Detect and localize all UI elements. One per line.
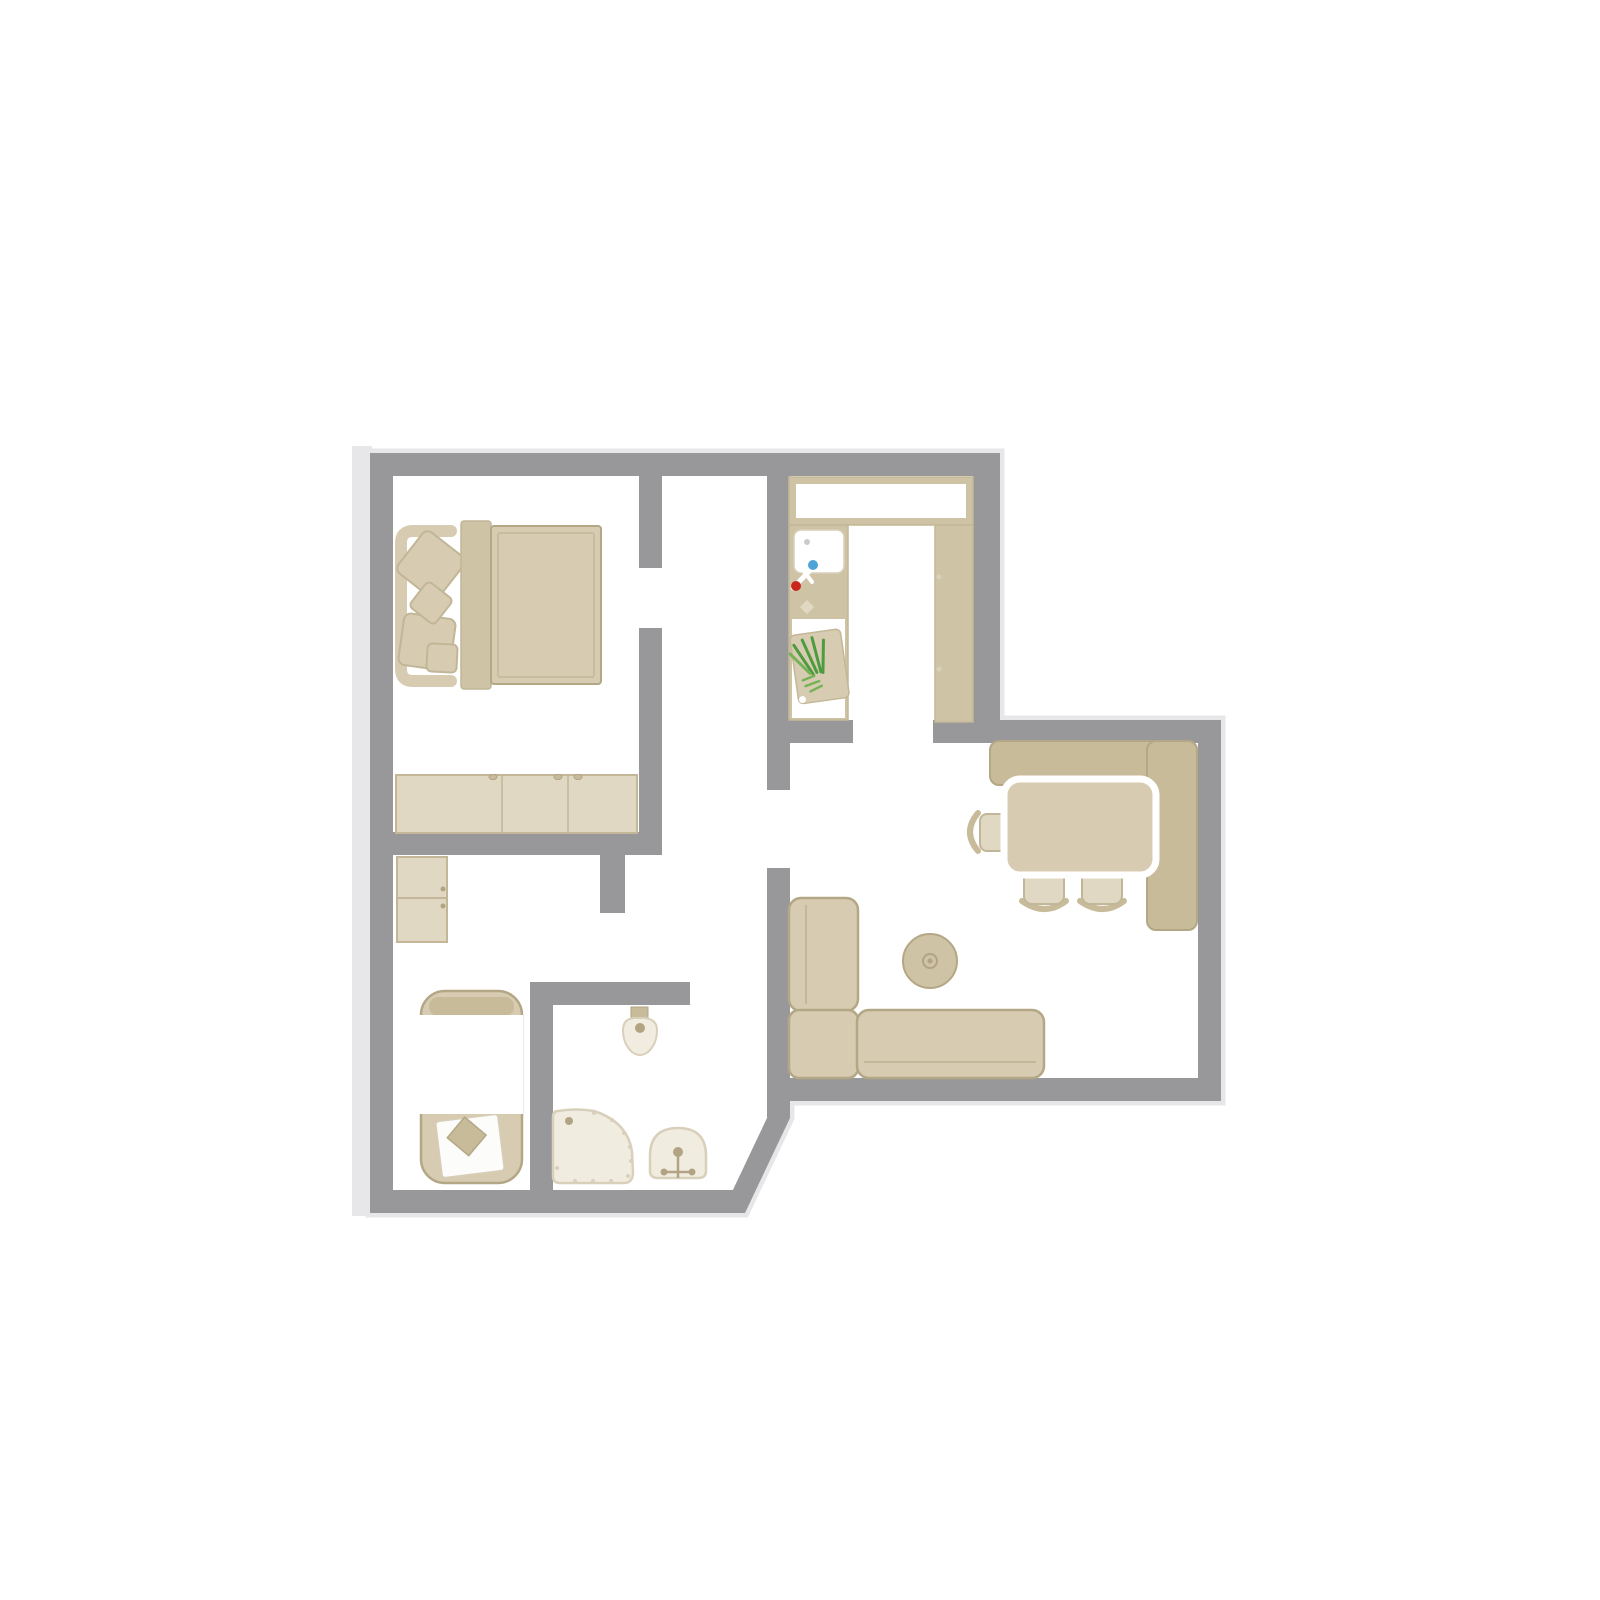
wall-top (370, 453, 1000, 476)
wall-south (370, 1190, 745, 1213)
rim-dot (555, 1166, 559, 1170)
room-bedroom (395, 521, 637, 833)
sofa-long-section (857, 1010, 1044, 1078)
wall-bedroom-east-lower (639, 628, 662, 855)
rim-dot (610, 1118, 614, 1122)
pouf-button (928, 959, 933, 964)
bed-pillow-small-2 (426, 643, 457, 673)
sideboard-knob (574, 775, 582, 780)
shower-drain (565, 1117, 573, 1125)
bathtub-headrest (429, 997, 514, 1016)
dining-table (1004, 779, 1156, 875)
sofa-corner-section (789, 1010, 858, 1078)
rim-dot (622, 1131, 626, 1135)
wall-bedroom-south (393, 832, 662, 855)
wall-living-north (933, 720, 1221, 743)
wall-kitchen-south (790, 720, 853, 743)
hall-cabinet-lower (397, 898, 447, 942)
wall-living-south (790, 1078, 1221, 1101)
wall-bath-north (530, 982, 690, 1005)
wall-kitchen-east (973, 476, 1000, 723)
washbasin-drain (673, 1147, 683, 1157)
wall-hall-stub (600, 855, 625, 913)
hall-cabinet-upper (397, 857, 447, 898)
bathtub-white-band (418, 1015, 523, 1114)
faucet-hot-dot (791, 581, 801, 591)
cabinet-knob (441, 887, 446, 892)
wall-bedroom-east-upper (639, 476, 662, 568)
bed-duvet-fold (461, 521, 491, 689)
wall-left (370, 453, 393, 1213)
floor-plan-page (0, 0, 1600, 1600)
kitchen-counter-east (935, 525, 973, 722)
rim-dot (628, 1145, 632, 1149)
rim-dot (573, 1179, 577, 1183)
floor-plan (0, 0, 1600, 1600)
sink-drain (804, 539, 810, 545)
rim-dot (629, 1159, 633, 1163)
counter-handle-dot (937, 667, 942, 672)
washbasin-handle-right (689, 1169, 696, 1176)
wall-bath-west (530, 982, 553, 1213)
sofa-west-section (789, 898, 858, 1011)
washbasin (650, 1128, 706, 1178)
bed-mattress (491, 526, 601, 684)
wall-living-west (767, 868, 790, 1118)
rim-dot (592, 1111, 596, 1115)
sideboard-knob (554, 775, 562, 780)
wall-kitchen-west (767, 476, 790, 790)
faucet-cold-dot (808, 560, 818, 570)
kitchen-counter-north-top (796, 484, 966, 518)
cutting-board-group (788, 629, 850, 705)
toilet-flush-button (635, 1023, 645, 1033)
counter-handle-dot (937, 575, 942, 580)
wall-living-east (1198, 720, 1221, 1101)
cabinet-knob (441, 904, 446, 909)
rim-dot (609, 1179, 613, 1183)
bedroom-sideboard (396, 775, 637, 833)
sideboard-knob (489, 775, 497, 780)
room-hallway (397, 857, 447, 942)
rim-dot (591, 1179, 595, 1183)
rim-dot (626, 1174, 630, 1178)
washbasin-handle-left (661, 1169, 668, 1176)
